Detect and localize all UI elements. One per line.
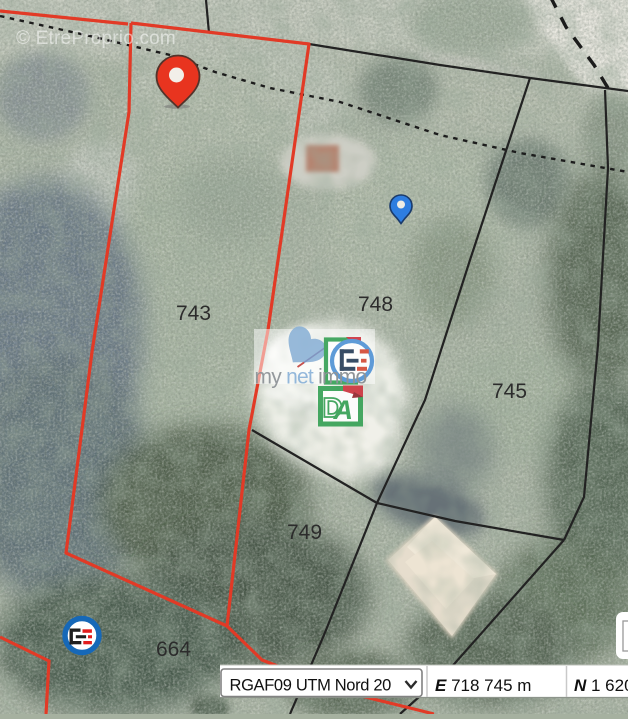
svg-text:745: 745 xyxy=(492,380,527,403)
svg-text:my net immo: my net immo xyxy=(255,366,367,389)
svg-text:RGAF09 UTM Nord 20: RGAF09 UTM Nord 20 xyxy=(230,677,392,695)
svg-text:743: 743 xyxy=(176,302,211,325)
svg-text:A: A xyxy=(333,395,354,425)
svg-text:748: 748 xyxy=(358,293,393,316)
svg-text:© EtreProprio.com: © EtreProprio.com xyxy=(16,28,176,49)
svg-text:664: 664 xyxy=(156,638,191,661)
svg-text:E 718 745 m: E 718 745 m xyxy=(435,676,531,695)
svg-text:N 1 620: N 1 620 xyxy=(574,676,628,695)
svg-text:749: 749 xyxy=(287,521,322,544)
